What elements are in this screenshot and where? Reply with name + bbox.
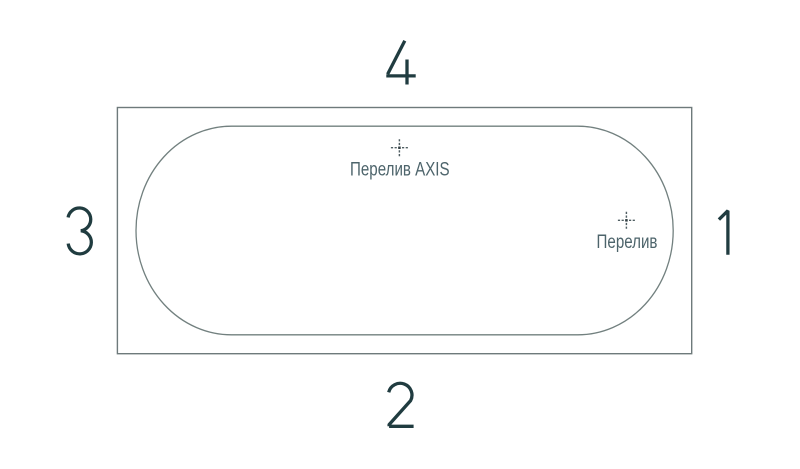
svg-text:Перелив AXIS: Перелив AXIS <box>350 157 450 179</box>
svg-text:Перелив: Перелив <box>597 230 658 252</box>
